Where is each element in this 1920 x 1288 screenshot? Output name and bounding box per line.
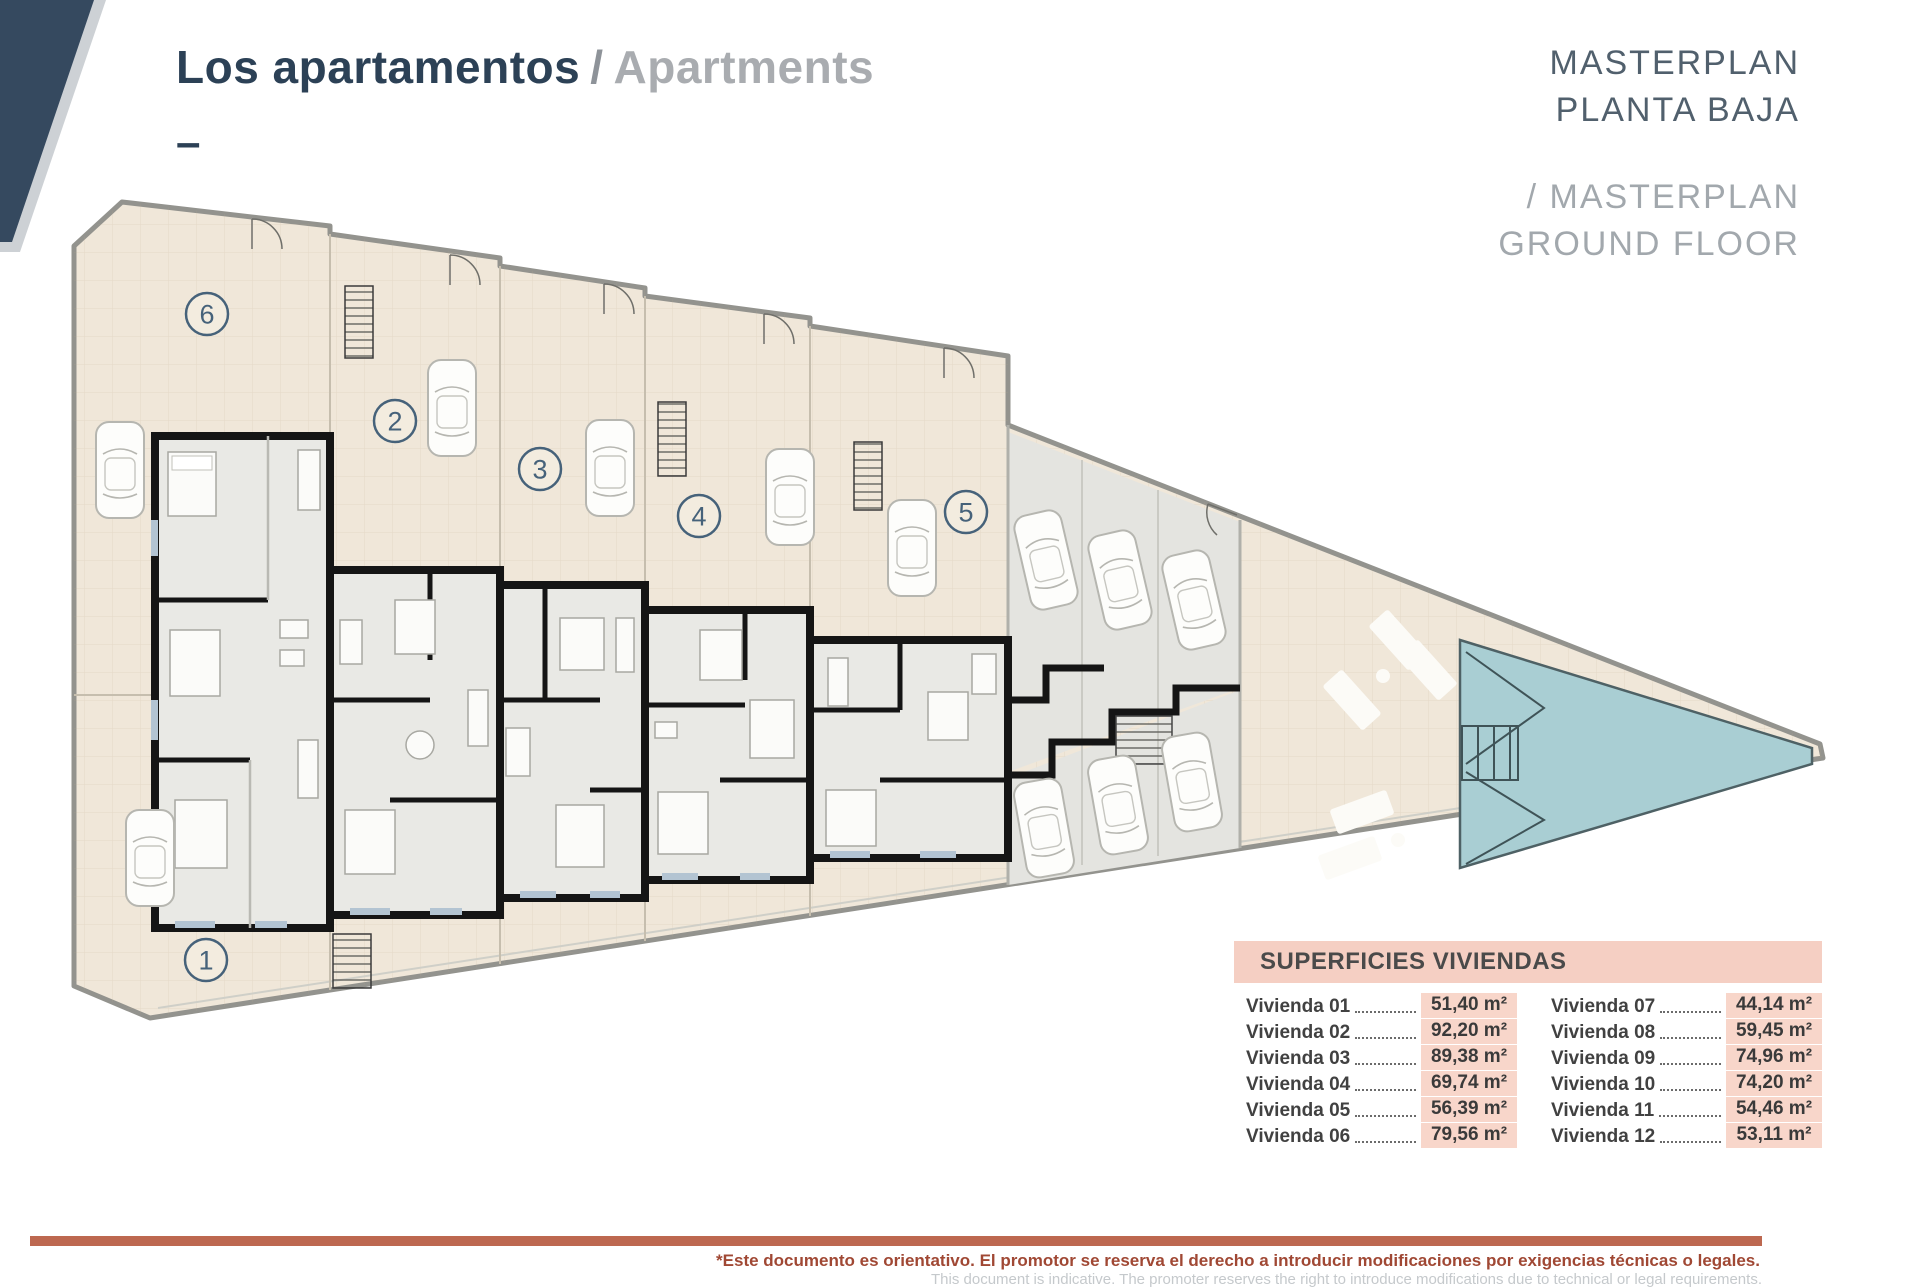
- svg-text:2: 2: [387, 406, 402, 436]
- table-row: Vivienda 0859,45 m²: [1551, 1018, 1822, 1044]
- table-row: Vivienda 0292,20 m²: [1246, 1018, 1517, 1044]
- table-row: Vivienda 0389,38 m²: [1246, 1044, 1517, 1070]
- svg-text:1: 1: [198, 945, 213, 975]
- unit-badge-2: 2: [374, 400, 416, 442]
- table-row: Vivienda 0679,56 m²: [1246, 1122, 1517, 1148]
- surfaces-col-1: Vivienda 0151,40 m² Vivienda 0292,20 m² …: [1246, 992, 1517, 1148]
- surfaces-table: SUPERFICIES VIVIENDAS Vivienda 0151,40 m…: [1234, 941, 1822, 1148]
- table-row: Vivienda 0469,74 m²: [1246, 1070, 1517, 1096]
- svg-text:3: 3: [532, 454, 547, 484]
- table-row: Vivienda 0744,14 m²: [1551, 992, 1822, 1018]
- unit-badge-4: 4: [678, 495, 720, 537]
- unit-badge-3: 3: [519, 448, 561, 490]
- table-row: Vivienda 1253,11 m²: [1551, 1122, 1822, 1148]
- disclaimer-es: *Este documento es orientativo. El promo…: [716, 1251, 1760, 1271]
- unit-badge-6: 6: [186, 293, 228, 335]
- footer-accent-bar: [30, 1236, 1762, 1246]
- surfaces-table-title: SUPERFICIES VIVIENDAS: [1234, 941, 1822, 983]
- table-row: Vivienda 0974,96 m²: [1551, 1044, 1822, 1070]
- table-row: Vivienda 1074,20 m²: [1551, 1070, 1822, 1096]
- svg-text:5: 5: [958, 497, 973, 527]
- table-row: Vivienda 1154,46 m²: [1551, 1096, 1822, 1122]
- surfaces-col-2: Vivienda 0744,14 m² Vivienda 0859,45 m² …: [1551, 992, 1822, 1148]
- svg-text:4: 4: [691, 501, 706, 531]
- table-row: Vivienda 0151,40 m²: [1246, 992, 1517, 1018]
- unit-badge-1: 1: [185, 939, 227, 981]
- svg-text:6: 6: [199, 299, 214, 329]
- table-row: Vivienda 0556,39 m²: [1246, 1096, 1517, 1122]
- unit-badge-5: 5: [945, 491, 987, 533]
